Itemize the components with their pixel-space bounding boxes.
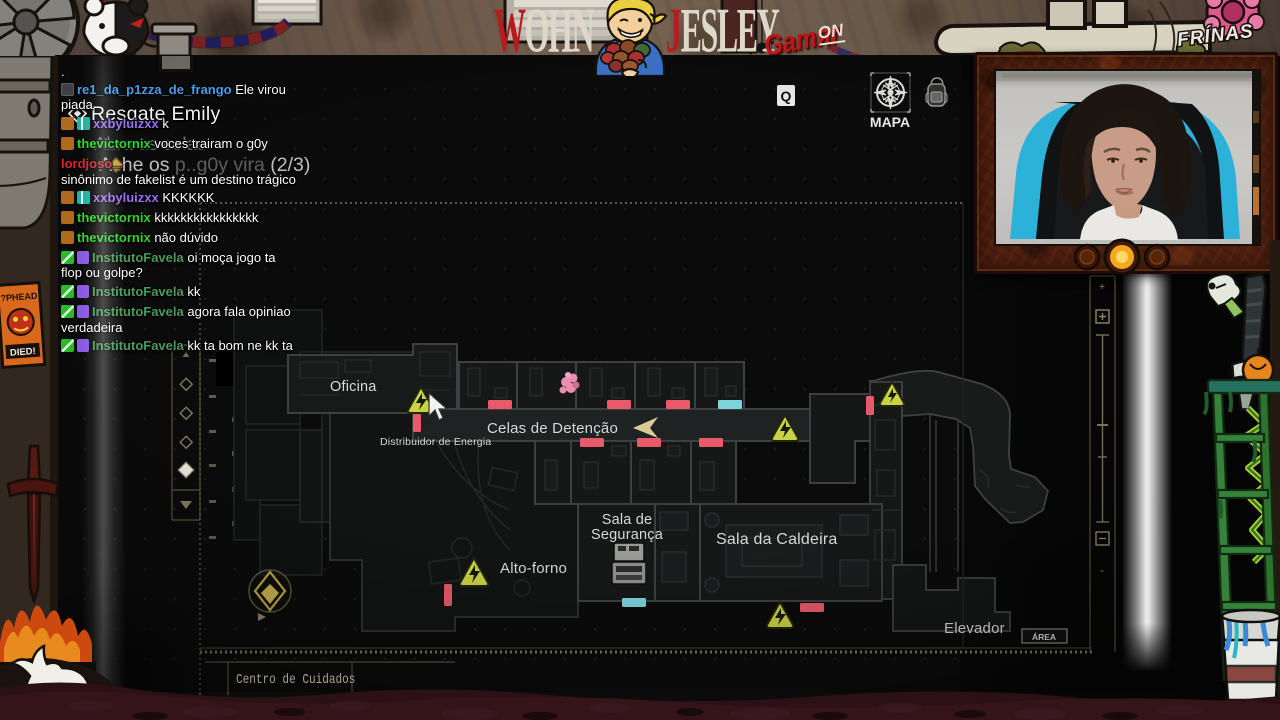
svg-text:DIED!: DIED! [10,346,37,359]
